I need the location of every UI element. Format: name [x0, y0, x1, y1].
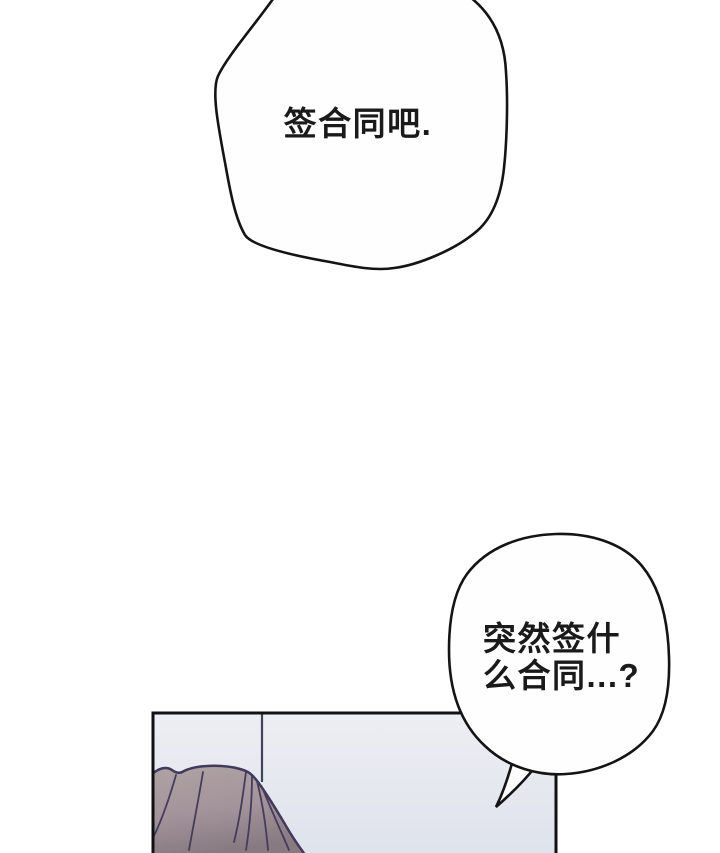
bubble-top-text: 签合同吧. [284, 97, 433, 145]
bubble-bottom-text: 突然签什 么合同...? [483, 620, 640, 694]
bubble-bottom-text-line2: 么合同...? [483, 657, 640, 694]
bubble-bottom-text-line1: 突然签什 [483, 620, 640, 657]
comic-page: 签合同吧. 突然签什 么合同...? [0, 0, 720, 853]
